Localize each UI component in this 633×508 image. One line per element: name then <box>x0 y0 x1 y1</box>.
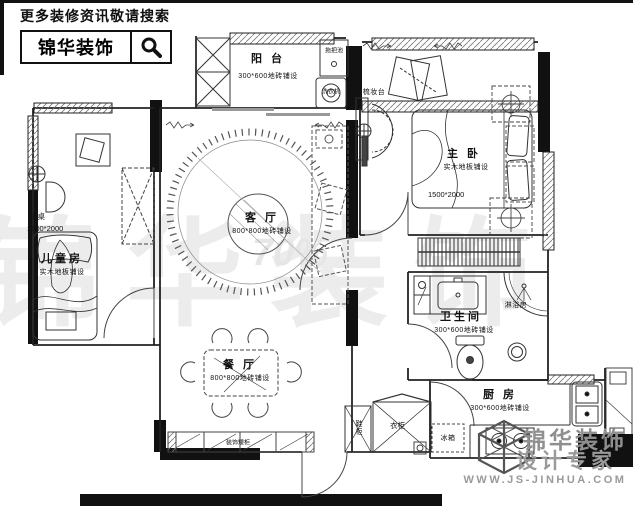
footer-url: WWW.JS-JINHUA.COM <box>464 474 627 486</box>
dresser-label: 梳妆台 <box>363 87 386 97</box>
lounge-chair <box>388 56 447 101</box>
header-search-block: 更多装修资讯敬请搜索 锦华装饰 <box>20 6 172 64</box>
sofa-group <box>312 126 348 304</box>
kids-wardrobe <box>122 168 154 244</box>
fridge-label: 冰箱 <box>441 433 456 443</box>
kids-room-label: 儿童房 <box>41 250 83 266</box>
washer-label: 洗衣机 <box>322 87 340 96</box>
balcony-label: 阳 台 <box>251 50 285 66</box>
floor-drain <box>508 343 526 361</box>
toilet <box>456 336 484 379</box>
shower-label: 淋浴房 <box>505 300 528 310</box>
master-tv <box>362 136 367 166</box>
dining-floor: 800*800地砖铺设 <box>210 373 270 383</box>
bathroom-label: 卫生间 <box>440 308 482 324</box>
master-room-label: 主 卧 <box>447 145 481 161</box>
header-tagline: 更多装修资讯敬请搜索 <box>20 6 172 26</box>
living-room-label: 客 厅 <box>245 209 279 225</box>
master-wardrobe <box>506 126 534 202</box>
brand-logo-text: 锦华装饰 <box>22 32 132 62</box>
living-floor: 800*800地砖铺设 <box>232 226 292 236</box>
kids-desk <box>29 134 110 212</box>
entry-wardrobe-label: 衣柜 <box>390 420 405 431</box>
dining-room-label: 餐 厅 <box>223 356 257 372</box>
balcony-shaft <box>196 38 230 106</box>
bathroom-floor: 300*600地砖铺设 <box>434 325 494 335</box>
kids-bed-size: 1200*2000 <box>27 224 63 233</box>
master-floor: 实木地板铺设 <box>444 162 489 172</box>
floorplan-page: 锦华装饰 70% <box>0 0 633 508</box>
master-bed-size: 1500*2000 <box>428 190 464 199</box>
radiator <box>418 238 520 266</box>
kitchen-floor: 300*600地砖铺设 <box>470 403 530 413</box>
low-cabinet-label: 装饰矮柜 <box>226 438 250 447</box>
kids-bed <box>33 232 97 340</box>
kitchen-label: 厨 房 <box>483 386 517 402</box>
search-icon[interactable] <box>132 32 170 62</box>
kids-floor: 实木地板铺设 <box>40 267 85 277</box>
desk-label: 书桌 <box>30 211 45 222</box>
shoe-cabinet-label: 鞋柜 <box>353 420 363 436</box>
search-box[interactable]: 锦华装饰 <box>20 30 172 64</box>
balcony-floor: 300*600地砖铺设 <box>238 71 298 81</box>
mop-pool-label: 拖把池 <box>325 46 343 55</box>
sliding-door <box>212 108 330 116</box>
footer-slogan: 设计专家 <box>516 445 616 475</box>
